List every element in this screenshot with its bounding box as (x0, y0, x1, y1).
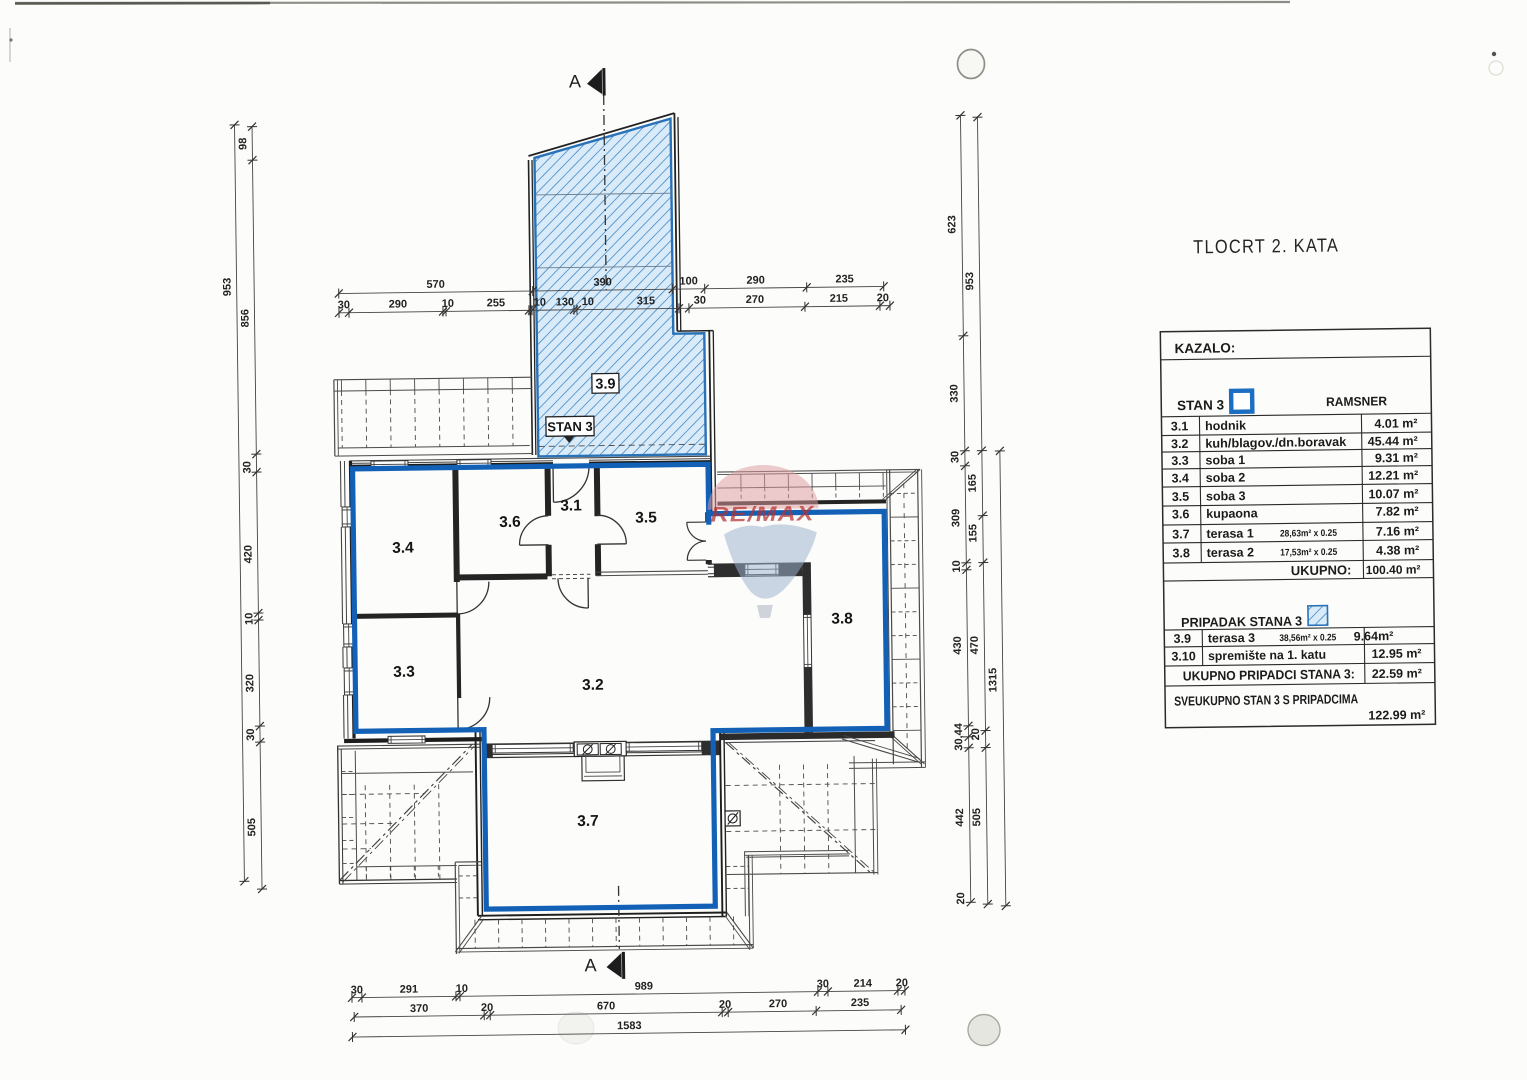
svg-text:20: 20 (970, 728, 982, 740)
svg-text:3.2: 3.2 (1171, 437, 1189, 451)
svg-text:12.95 m²: 12.95 m² (1371, 646, 1421, 661)
svg-text:UKUPNO:: UKUPNO: (1291, 562, 1352, 578)
svg-text:953: 953 (964, 272, 976, 291)
svg-text:4.01 m²: 4.01 m² (1374, 416, 1417, 431)
svg-text:STAN 3: STAN 3 (547, 419, 592, 435)
svg-text:623: 623 (946, 215, 958, 234)
svg-text:505: 505 (246, 818, 258, 837)
svg-text:4.38 m²: 4.38 m² (1376, 543, 1419, 558)
svg-text:A: A (569, 71, 581, 91)
svg-text:3.7: 3.7 (577, 813, 599, 830)
svg-text:20: 20 (877, 292, 889, 304)
svg-text:330: 330 (948, 384, 960, 403)
svg-text:3.5: 3.5 (1172, 490, 1190, 504)
svg-text:RE/MAX: RE/MAX (711, 502, 816, 526)
svg-text:430: 430 (952, 636, 964, 655)
svg-text:442: 442 (954, 808, 966, 827)
svg-text:1583: 1583 (617, 1020, 642, 1032)
svg-text:122.99 m²: 122.99 m² (1368, 708, 1425, 723)
svg-text:155: 155 (967, 524, 979, 543)
svg-text:98: 98 (237, 138, 249, 150)
svg-text:505: 505 (971, 808, 983, 827)
svg-text:390: 390 (593, 276, 612, 288)
svg-text:3.2: 3.2 (582, 677, 604, 694)
svg-text:130: 130 (556, 296, 575, 308)
svg-text:309: 309 (950, 509, 962, 528)
svg-text:30: 30 (338, 299, 350, 311)
svg-text:A: A (584, 955, 596, 975)
svg-text:20: 20 (955, 892, 967, 904)
svg-text:100.40 m²: 100.40 m² (1366, 562, 1421, 577)
svg-text:570: 570 (426, 279, 445, 291)
svg-text:320: 320 (244, 674, 256, 693)
svg-text:30: 30 (694, 295, 706, 307)
svg-text:7.82 m²: 7.82 m² (1375, 504, 1418, 519)
svg-text:9.64m²: 9.64m² (1354, 629, 1394, 644)
svg-text:30: 30 (241, 461, 253, 473)
svg-text:RAMSNER: RAMSNER (1326, 394, 1387, 409)
svg-text:3.5: 3.5 (635, 509, 657, 526)
svg-text:hodnik: hodnik (1205, 419, 1246, 434)
svg-text:290: 290 (746, 274, 765, 286)
svg-text:20: 20 (896, 977, 908, 989)
svg-text:3.7: 3.7 (1172, 527, 1190, 541)
svg-text:3.3: 3.3 (1171, 454, 1189, 468)
svg-text:kupaona: kupaona (1206, 506, 1259, 521)
svg-text:20: 20 (719, 999, 731, 1011)
svg-text:953: 953 (222, 278, 234, 297)
svg-text:soba 3: soba 3 (1206, 489, 1246, 504)
svg-text:30: 30 (351, 984, 363, 996)
svg-text:856: 856 (239, 309, 251, 328)
svg-text:100: 100 (679, 275, 698, 287)
svg-text:10: 10 (534, 297, 546, 309)
svg-text:TLOCRT 2. KATA: TLOCRT 2. KATA (1193, 235, 1339, 258)
svg-text:3.1: 3.1 (560, 497, 582, 514)
svg-text:20: 20 (481, 1002, 493, 1014)
svg-text:3.4: 3.4 (1171, 471, 1189, 485)
svg-text:270: 270 (746, 294, 765, 306)
svg-text:3.8: 3.8 (831, 610, 853, 627)
svg-text:291: 291 (400, 984, 419, 996)
svg-text:30,44: 30,44 (953, 722, 965, 751)
svg-text:3.6: 3.6 (1172, 507, 1190, 521)
svg-text:3.6: 3.6 (499, 514, 521, 531)
svg-text:3.9: 3.9 (595, 376, 615, 392)
svg-text:17,53m² x 0.25: 17,53m² x 0.25 (1280, 547, 1338, 559)
svg-text:terasa 2: terasa 2 (1207, 545, 1254, 560)
svg-text:3.4: 3.4 (392, 540, 414, 557)
svg-text:45.44 m²: 45.44 m² (1368, 434, 1418, 449)
svg-text:30: 30 (245, 729, 257, 741)
svg-text:7.16 m²: 7.16 m² (1376, 524, 1419, 539)
svg-text:165: 165 (967, 474, 979, 493)
svg-text:235: 235 (851, 997, 870, 1009)
svg-text:soba 1: soba 1 (1205, 453, 1245, 468)
svg-text:3.9: 3.9 (1174, 632, 1192, 646)
svg-text:3.1: 3.1 (1171, 419, 1189, 433)
svg-text:315: 315 (637, 295, 656, 307)
svg-text:255: 255 (487, 297, 506, 309)
svg-text:12.21 m²: 12.21 m² (1368, 468, 1418, 483)
svg-text:10: 10 (582, 296, 594, 308)
svg-text:spremište na 1. katu: spremište na 1. katu (1208, 648, 1326, 664)
svg-text:670: 670 (597, 1000, 616, 1012)
svg-text:214: 214 (854, 978, 873, 990)
svg-text:KAZALO:: KAZALO: (1174, 340, 1235, 356)
svg-text:10.07 m²: 10.07 m² (1368, 487, 1418, 502)
svg-text:28,63m² x 0.25: 28,63m² x 0.25 (1280, 528, 1338, 540)
svg-text:PRIPADAK STANA 3: PRIPADAK STANA 3 (1181, 613, 1302, 630)
svg-text:30: 30 (949, 451, 961, 463)
svg-text:kuh/blagov./dn.boravak: kuh/blagov./dn.boravak (1205, 435, 1346, 451)
svg-text:3.8: 3.8 (1172, 546, 1190, 560)
svg-text:10: 10 (442, 298, 454, 310)
svg-text:10: 10 (456, 983, 468, 995)
svg-text:UKUPNO PRIPADCI STANA 3:: UKUPNO PRIPADCI STANA 3: (1183, 666, 1355, 683)
svg-text:terasa 3: terasa 3 (1208, 631, 1255, 646)
svg-text:215: 215 (830, 293, 849, 305)
svg-text:420: 420 (243, 545, 255, 564)
svg-text:3.10: 3.10 (1171, 649, 1196, 663)
svg-text:SVEUKUPNO STAN 3 S PRIPADCIMA: SVEUKUPNO STAN 3 S PRIPADCIMA (1174, 691, 1359, 708)
svg-text:38,56m² x 0.25: 38,56m² x 0.25 (1279, 632, 1337, 644)
svg-text:290: 290 (389, 298, 408, 310)
svg-text:370: 370 (410, 1003, 429, 1015)
svg-text:235: 235 (835, 273, 854, 285)
svg-text:terasa 1: terasa 1 (1206, 526, 1253, 541)
svg-text:270: 270 (769, 998, 788, 1010)
svg-text:22.59 m²: 22.59 m² (1372, 666, 1422, 681)
svg-text:3.3: 3.3 (393, 664, 415, 681)
svg-text:9.31 m²: 9.31 m² (1375, 451, 1418, 466)
svg-text:30: 30 (817, 978, 829, 990)
svg-text:1315: 1315 (987, 668, 999, 693)
svg-text:989: 989 (635, 980, 654, 992)
svg-text:STAN 3: STAN 3 (1177, 397, 1225, 413)
svg-text:470: 470 (969, 636, 981, 655)
svg-text:10: 10 (243, 613, 255, 625)
svg-text:soba 2: soba 2 (1206, 470, 1246, 485)
svg-text:10: 10 (951, 560, 963, 572)
